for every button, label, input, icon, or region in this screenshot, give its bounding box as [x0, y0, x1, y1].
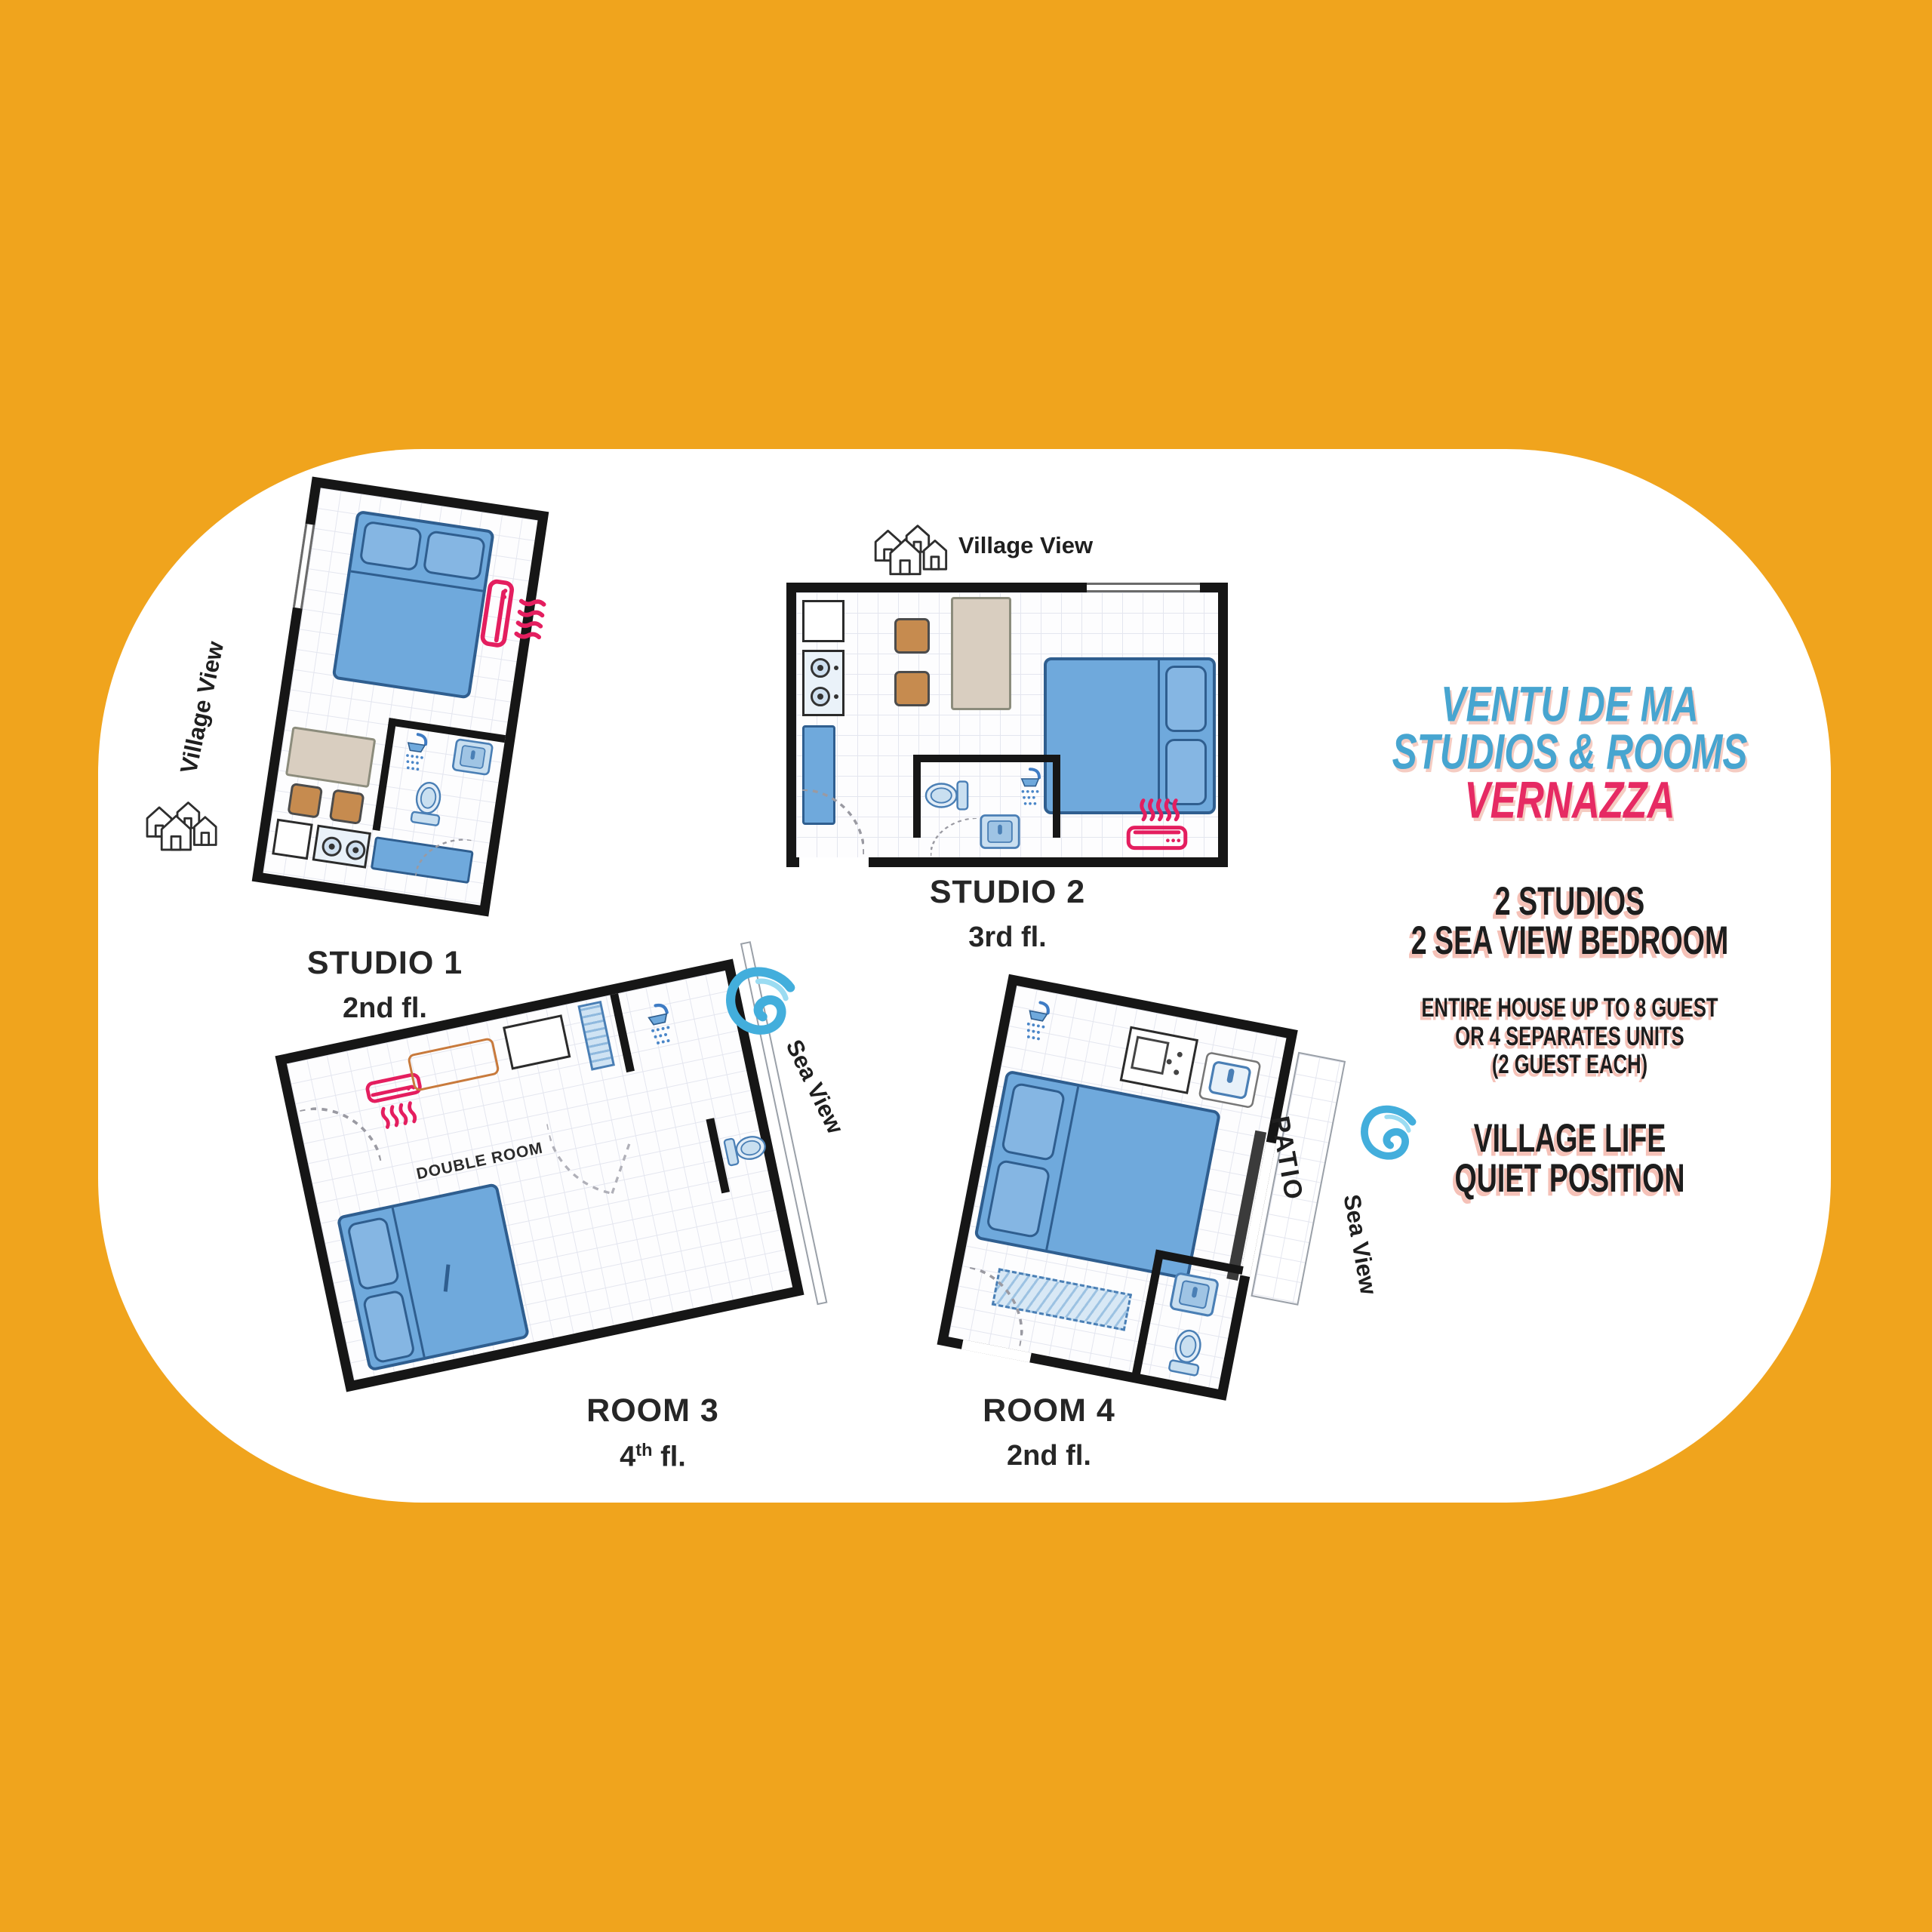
- spacer: [1298, 826, 1841, 881]
- pillow: [1165, 666, 1207, 732]
- plan-name: ROOM 3: [513, 1392, 792, 1429]
- plan-floor: 3rd fl.: [868, 921, 1147, 954]
- poster-canvas: Village View STUDIO 1 2nd fl.: [0, 0, 1932, 1932]
- bed-mark: [444, 1264, 451, 1291]
- shower-icon: [394, 728, 436, 777]
- bed: [332, 510, 495, 700]
- bathroom-wall: [1053, 755, 1060, 838]
- bed: [974, 1069, 1221, 1280]
- toilet-icon: [1163, 1325, 1211, 1380]
- spacer: [1298, 961, 1841, 994]
- chair: [287, 783, 323, 819]
- house-line-2: OR 4 SEPARATES UNITS: [1352, 1021, 1787, 1053]
- pillow: [1001, 1082, 1066, 1162]
- view-label-text: Village View: [175, 639, 229, 777]
- door-arc: [300, 1096, 382, 1178]
- pillow: [362, 1289, 417, 1364]
- dining-table: [951, 597, 1011, 710]
- bench: [407, 1037, 500, 1092]
- bathroom-wall: [373, 718, 397, 831]
- pillow: [1165, 739, 1207, 805]
- studio2-caption: STUDIO 2 3rd fl.: [868, 874, 1147, 954]
- bathroom-wall: [913, 755, 1060, 762]
- door-arc: [954, 1266, 1034, 1346]
- door-arc: [931, 818, 979, 856]
- shower-icon: [1012, 766, 1048, 810]
- plan-name: ROOM 4: [909, 1392, 1189, 1429]
- ac-unit-icon: [471, 573, 557, 659]
- shower-icon: [1014, 996, 1060, 1048]
- sink-icon: [1168, 1270, 1221, 1319]
- toilet-icon: [721, 1128, 771, 1171]
- bed: [1044, 657, 1216, 814]
- house-line-1: ENTIRE HOUSE UP TO 8 GUEST: [1352, 992, 1787, 1024]
- plan-name: STUDIO 2: [868, 874, 1147, 911]
- chair: [894, 618, 930, 654]
- heater-icon: [1119, 798, 1195, 852]
- door-gap: [799, 857, 869, 867]
- stove-icon: [1120, 1026, 1198, 1094]
- sink-icon: [979, 813, 1021, 851]
- plan-floor: 2nd fl.: [909, 1440, 1189, 1472]
- title-line-3: VERNAZZA: [1342, 773, 1798, 828]
- room-type-label: DOUBLE ROOM: [415, 1140, 545, 1184]
- bathroom-wall: [913, 755, 921, 838]
- studio2-view-label: Village View: [866, 515, 1093, 577]
- pillow: [359, 521, 423, 572]
- radiator: [577, 1001, 615, 1071]
- door-arc: [799, 789, 864, 854]
- house-line-3: (2 GUEST EACH): [1352, 1049, 1787, 1081]
- floorplan-studio2: [786, 583, 1228, 867]
- pillow: [986, 1159, 1051, 1239]
- side-table: [503, 1014, 571, 1069]
- window: [1087, 583, 1200, 592]
- door-arc: [546, 1107, 645, 1205]
- room4-caption: ROOM 4 2nd fl.: [909, 1392, 1189, 1472]
- door-arc: [415, 832, 474, 884]
- spacer: [1298, 1079, 1841, 1118]
- chair: [894, 671, 930, 706]
- studio2-floor: [786, 583, 1228, 867]
- capacity-line-1: 2 STUDIOS: [1352, 878, 1787, 923]
- village-line-1: VILLAGE LIFE: [1352, 1116, 1787, 1161]
- bed-fold-line: [1158, 660, 1160, 811]
- capacity-line-2: 2 SEA VIEW BEDROOM: [1352, 918, 1787, 963]
- plan-floor: 4th fl.: [513, 1440, 792, 1474]
- info-column: VENTU DE MA STUDIOS & ROOMS VERNAZZA 2 S…: [1298, 681, 1841, 1198]
- pillow: [423, 530, 487, 581]
- room3-caption: ROOM 3 4th fl.: [513, 1392, 792, 1474]
- toilet-icon: [924, 777, 971, 814]
- pillow: [346, 1216, 401, 1291]
- fridge: [802, 600, 844, 642]
- sink-icon: [1196, 1050, 1263, 1110]
- stove-icon: [312, 825, 371, 869]
- houses-icon: [866, 515, 948, 577]
- toilet-icon: [406, 778, 449, 829]
- stove-icon: [802, 650, 844, 716]
- shower-icon: [635, 998, 684, 1052]
- dining-table: [285, 726, 377, 788]
- kitchen-cabinet: [272, 819, 313, 860]
- view-label-text: Village View: [958, 532, 1093, 559]
- bed: [336, 1183, 530, 1372]
- sink-icon: [449, 737, 496, 777]
- chair: [329, 789, 365, 825]
- wave-icon: [715, 964, 802, 1049]
- houses-icon: [139, 792, 217, 852]
- village-line-2: QUIET POSITION: [1352, 1155, 1787, 1200]
- plan-name: STUDIO 1: [249, 945, 521, 982]
